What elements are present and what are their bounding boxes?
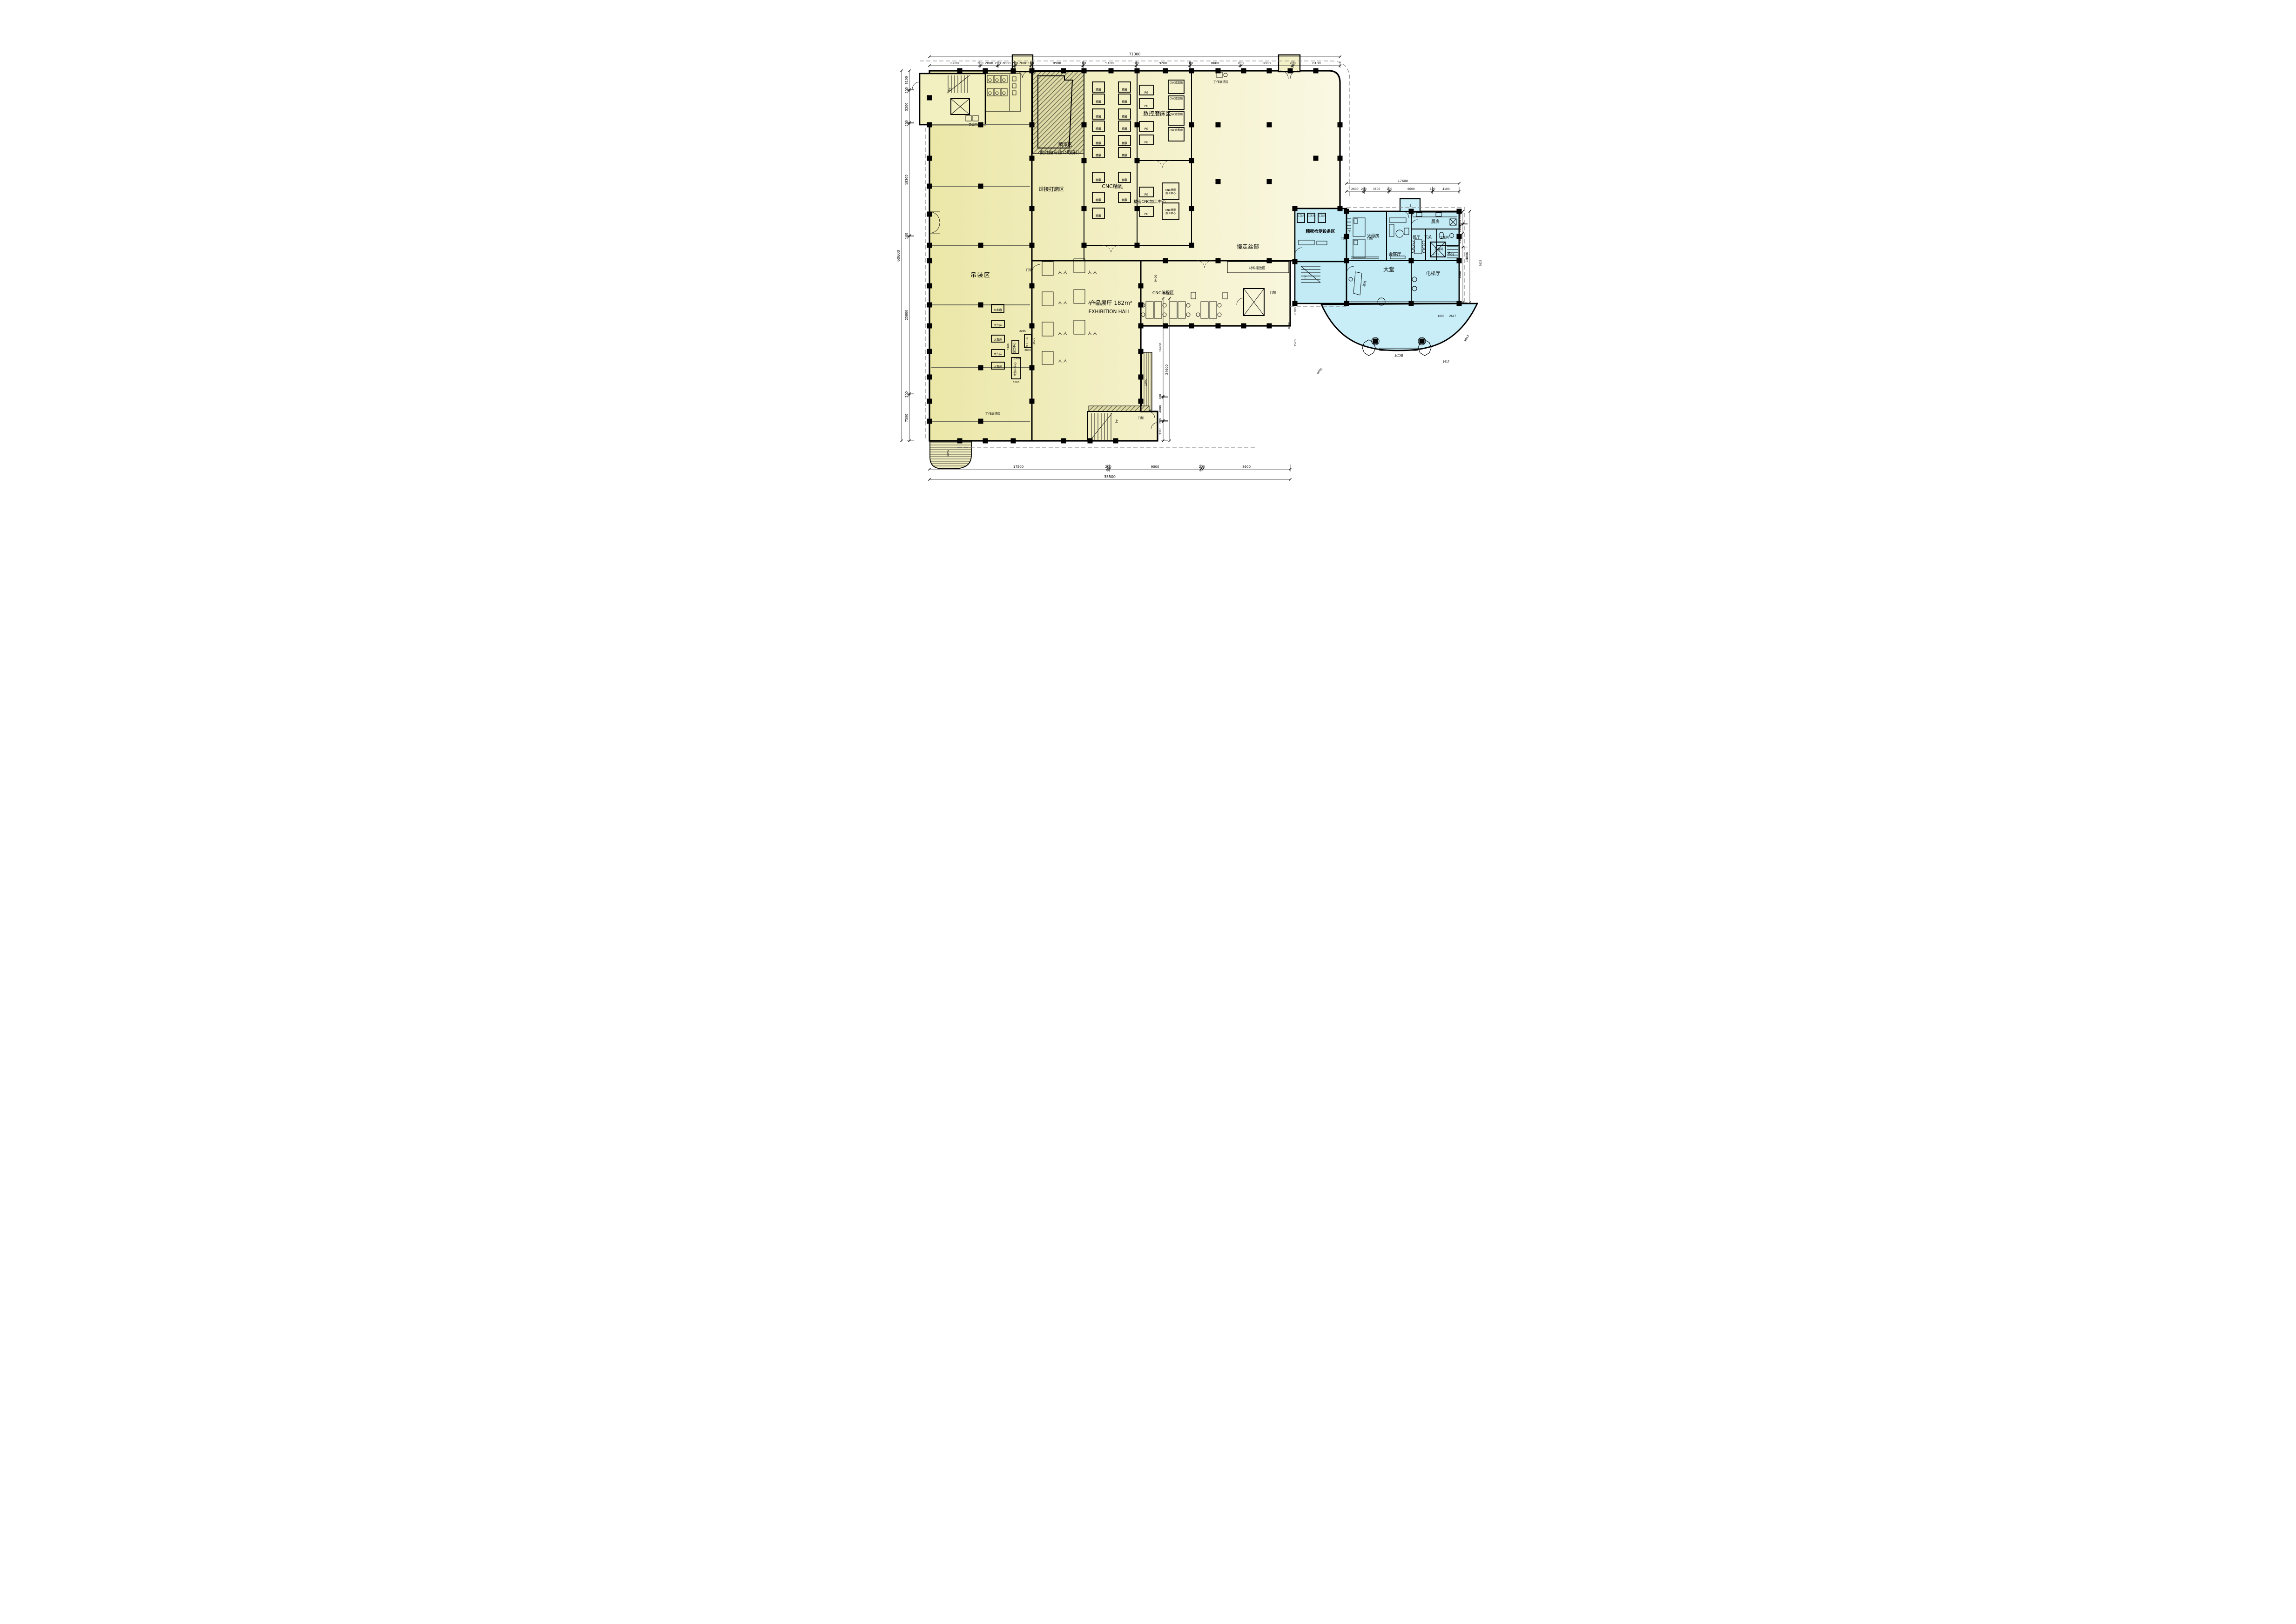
up-label: 上: [1409, 203, 1412, 208]
label-tool-room: 工具间: [1434, 247, 1443, 251]
machine-label: 精雕: [1121, 127, 1127, 131]
dim-text: 4000: [1159, 405, 1162, 413]
machine-label: 三次元: [1318, 214, 1326, 218]
machine-label: 大水磨: [993, 308, 1002, 312]
machine-label: 精雕: [1121, 100, 1127, 104]
dim-text: 2800: [1002, 61, 1010, 65]
column: [1189, 323, 1194, 329]
column: [1029, 365, 1034, 371]
dim-text: 200: [1159, 418, 1162, 424]
column: [927, 258, 932, 263]
column: [1215, 68, 1220, 74]
dim-text: 2300: [1013, 357, 1020, 360]
dim-text: 8700: [950, 61, 959, 65]
ramp-slope-label: 10%: [946, 450, 950, 457]
label-hoisting-area: 吊装区: [970, 271, 991, 278]
column: [1134, 206, 1139, 211]
column: [1313, 156, 1318, 161]
label-inspection-area: 精密检测设备区: [1306, 229, 1335, 234]
column: [1344, 258, 1349, 263]
machine-label: 精雕: [1121, 115, 1127, 119]
column: [1215, 258, 1220, 263]
dim-text: 9000: [1459, 271, 1462, 278]
machine-label: PG: [1144, 193, 1148, 196]
column: [1138, 283, 1143, 289]
column: [1134, 243, 1139, 248]
person-figures: 人 人: [1058, 270, 1067, 275]
column: [1292, 206, 1297, 211]
column: [1408, 258, 1414, 263]
column: [1029, 243, 1034, 248]
column: [1215, 179, 1220, 184]
access-control-label: 门禁: [1138, 416, 1144, 420]
column: [1337, 122, 1342, 128]
machine-label: 加工中心: [1025, 337, 1029, 348]
dim-text: 200: [1361, 188, 1367, 191]
column: [1061, 438, 1066, 444]
column: [1189, 158, 1194, 163]
column: [1189, 206, 1194, 211]
machine-label: 精雕: [1095, 154, 1101, 157]
column: [1029, 68, 1034, 74]
dim-text: 200: [905, 120, 909, 126]
column: [1344, 301, 1349, 306]
machine-label: PG: [1144, 105, 1148, 108]
column: [983, 438, 988, 444]
access-control-label: 门禁: [1340, 236, 1347, 240]
column: [1189, 122, 1194, 128]
dim-text: 2600: [1033, 338, 1036, 344]
machine-label: PG: [1144, 141, 1148, 144]
column: [1241, 68, 1246, 74]
machine-label: CNC成型磨: [1169, 97, 1183, 101]
access-control-label: 门禁: [1270, 290, 1276, 294]
dim-text: 200: [1387, 188, 1392, 191]
dim-text: 2628: [1480, 259, 1482, 266]
dim-text: 1400: [1459, 225, 1462, 232]
column: [1266, 122, 1272, 128]
person-figures: 人 人: [1058, 359, 1067, 364]
column: [1081, 68, 1086, 74]
machine-label: PG: [1144, 91, 1148, 94]
dim-text: 200: [905, 391, 909, 398]
column: [927, 95, 932, 101]
machine-label: 大车床: [993, 352, 1002, 356]
column: [927, 283, 932, 289]
column: [1087, 438, 1092, 444]
column: [978, 365, 983, 371]
dim-text: 3000: [1013, 381, 1019, 384]
person-figures: 人 人: [1088, 270, 1097, 275]
column: [1456, 258, 1461, 263]
machine-label: 大车床: [993, 338, 1002, 342]
machine-label: 精雕: [1095, 198, 1101, 202]
column: [1456, 301, 1461, 306]
column: [1010, 438, 1016, 444]
column: [983, 68, 988, 74]
column: [1081, 206, 1086, 211]
dim-text: 8100: [1312, 61, 1320, 65]
column: [978, 303, 983, 308]
column: [927, 212, 932, 217]
dim-text: 9100: [1105, 61, 1114, 65]
machine-label: 精雕: [1121, 198, 1127, 202]
column: [1029, 156, 1034, 161]
dim-total: 71000: [1129, 52, 1140, 56]
label-work-cleaning-sw: 工作清洁区: [985, 411, 1000, 416]
machine-label: 三次元: [1297, 214, 1305, 218]
dim-text: 200: [1237, 61, 1243, 65]
dim-text: 3100: [905, 76, 909, 84]
dim-text: 1617: [1442, 361, 1449, 364]
machine-label: CNC精密: [1165, 188, 1176, 192]
dim-text: 2750: [1433, 253, 1439, 256]
label-reception-room: 会客厅: [1388, 251, 1401, 257]
machine-label: 大车床: [993, 365, 1002, 369]
up-label: 上: [948, 87, 951, 91]
column: [1134, 122, 1139, 128]
column: [927, 323, 932, 329]
dim-text: 8600: [1211, 61, 1219, 65]
machine-label: 精雕: [1095, 127, 1101, 131]
dim-text: 7500: [905, 414, 909, 422]
dim-text: 100: [905, 233, 909, 239]
column: [1215, 122, 1220, 128]
column: [927, 156, 932, 161]
label-work-cleaning-ne: 工作清洁区: [1213, 80, 1228, 84]
column: [1134, 68, 1139, 74]
label-wire-edm: 慢走丝部: [1236, 243, 1259, 250]
column: [1266, 68, 1272, 74]
dim-text: 6000: [1316, 367, 1323, 375]
dim-total: 35500: [1104, 475, 1116, 479]
label-welding-area: 焊接打磨区: [1038, 186, 1064, 192]
dim-text: 8900: [1053, 61, 1061, 65]
column: [927, 419, 932, 424]
column: [957, 438, 962, 444]
column: [1138, 323, 1143, 329]
label-material-staging: 材料摆放区: [1249, 266, 1265, 270]
machine-label: CNC成型磨: [1169, 128, 1183, 132]
dimension-chain: 260020038002006600100410017600: [1345, 179, 1460, 194]
label-elevator-hall: 电梯厅: [1426, 270, 1440, 276]
column: [1163, 258, 1168, 263]
label-paint-note: 此处由专业公司设计: [1040, 150, 1080, 155]
machine-label: 精雕: [1095, 142, 1101, 145]
access-control-label: 门禁: [1367, 236, 1373, 240]
machine-label: 精雕: [1121, 154, 1127, 157]
machine-label: 加工中心: [1165, 211, 1176, 215]
dim-text: 8600: [1242, 465, 1251, 469]
dim-text: 3800: [1373, 188, 1380, 191]
column: [978, 122, 983, 128]
column: [957, 68, 962, 74]
column: [927, 349, 932, 354]
machine-label: 精雕: [1095, 178, 1101, 182]
column: [1408, 301, 1414, 306]
column: [1029, 323, 1034, 329]
dim-text: 200: [1159, 394, 1162, 399]
machine-label: 加工中心: [1165, 191, 1176, 195]
column: [1010, 68, 1016, 74]
dimension-chain: 175002009000200860035500: [928, 465, 1291, 481]
dim-text: 100: [1080, 61, 1086, 65]
dim-text: 2800: [985, 61, 993, 65]
label-bathroom: 卫生间: [1440, 235, 1449, 239]
dim-text: 2000: [1459, 214, 1462, 221]
column: [927, 122, 932, 128]
column: [1337, 156, 1342, 161]
dim-text: 200: [1198, 465, 1205, 469]
label-precision-cnc: 精密CNC加工中心: [1133, 199, 1166, 204]
entrance-canopy-fan: [1321, 303, 1477, 350]
label-cnc-programming: CNC编程区: [1152, 290, 1173, 296]
machine-label: CNC精密: [1165, 208, 1176, 212]
dim-text: 9000: [1151, 465, 1159, 469]
label-kitchen: 厨房: [1431, 219, 1439, 224]
column: [1138, 375, 1143, 380]
column: [1215, 323, 1220, 329]
dim-text: 5200: [905, 102, 909, 111]
dim-total: 17600: [1397, 179, 1407, 183]
person-figures: 人 人: [1088, 331, 1097, 336]
up-label: 上: [1303, 275, 1306, 279]
person-figures: 人 人: [1088, 301, 1097, 305]
dim-text: 9200: [1158, 61, 1167, 65]
column: [1337, 206, 1342, 211]
column: [978, 243, 983, 248]
up-label: 上: [1447, 251, 1450, 255]
dim-text: 5913: [1463, 335, 1470, 343]
column: [1189, 243, 1194, 248]
column: [1081, 243, 1086, 248]
up-label: 上: [1115, 419, 1118, 423]
dim-total: 14800: [1465, 252, 1469, 262]
column: [1113, 438, 1118, 444]
column: [1163, 323, 1168, 329]
column: [1081, 122, 1086, 128]
column: [1189, 68, 1194, 74]
column: [1138, 399, 1143, 404]
column: [1313, 68, 1318, 74]
machine-label: 大车床: [993, 323, 1002, 327]
column: [1241, 323, 1246, 329]
ramp-slope-label: 10%: [1144, 379, 1148, 386]
southwest-ramp: [930, 441, 971, 469]
column: [978, 184, 983, 189]
dim-text: 200: [1105, 465, 1111, 469]
dim-text: 1520: [1294, 339, 1297, 347]
column: [1408, 209, 1414, 214]
dim-total: 60600: [896, 250, 901, 262]
label-dining-room: 餐厅: [1413, 235, 1420, 239]
steps-label: 上二级: [1394, 353, 1403, 357]
machine-label: PG: [1144, 128, 1148, 131]
machine-label: 精雕: [1121, 178, 1127, 182]
dim-text: 18300: [905, 175, 909, 185]
column: [1292, 301, 1297, 306]
dimension-chain: 310020052002001830010025800200750060600: [896, 69, 914, 442]
column: [927, 184, 932, 189]
column: [1134, 158, 1139, 163]
label-cnc-grinder-area: 数控磨床区: [1143, 110, 1171, 117]
dim-text: 7820: [1288, 322, 1291, 330]
dim-text: 200: [1012, 61, 1018, 65]
column: [927, 399, 932, 404]
dim-text: 100: [1430, 188, 1435, 191]
dim-text: 16900: [1159, 343, 1162, 352]
column: [1266, 179, 1272, 184]
column: [1029, 122, 1034, 128]
dim-text: 100: [1133, 61, 1139, 65]
machine-label: 大加工中心: [1013, 362, 1017, 376]
label-exhibition-en: EXHIBITION HALL: [1088, 309, 1131, 315]
machine-label: 加工中心: [1012, 343, 1016, 353]
column: [1266, 323, 1272, 329]
dim-text: 4100: [1442, 188, 1449, 191]
column: [1138, 349, 1143, 354]
dim-text: 9400: [1154, 275, 1158, 282]
column: [1138, 303, 1143, 308]
column: [1456, 209, 1461, 214]
column: [1029, 399, 1034, 404]
dim-text: 8800: [1262, 61, 1271, 65]
dim-text: 200: [994, 61, 1000, 65]
person-figures: 人 人: [1058, 301, 1067, 305]
machine-label: PG: [1144, 213, 1148, 216]
down-label: 下: [1347, 230, 1350, 234]
column: [1081, 158, 1086, 163]
machine-label: 三次元: [1307, 214, 1315, 218]
label-foyer: 玄关: [1424, 235, 1432, 239]
machine-label: CNC成型磨: [1169, 81, 1183, 85]
person-figures: 人 人: [1058, 331, 1067, 336]
dim-text: 3100: [1007, 344, 1010, 350]
column: [927, 375, 932, 380]
dim-text: 3300: [1159, 428, 1162, 435]
dim-text: 2627: [1449, 315, 1456, 318]
dim-text: 1095: [1437, 315, 1444, 318]
dim-text: 2600: [1019, 61, 1027, 65]
dim-total: 24600: [1165, 364, 1169, 375]
machine-label: 精雕: [1095, 100, 1101, 104]
column: [1266, 258, 1272, 263]
column: [927, 243, 932, 248]
dim-text: 200: [1289, 61, 1295, 65]
paint-zone-hatch: [1033, 72, 1084, 154]
dim-text: 2300: [1459, 236, 1462, 244]
dim-text: 100: [1028, 61, 1034, 65]
column: [1029, 283, 1034, 289]
column: [1108, 68, 1113, 74]
machine-label: 精雕: [1095, 115, 1101, 119]
label-cnc-engraving: CNC精雕: [1102, 183, 1123, 189]
column: [1061, 68, 1066, 74]
column: [927, 303, 932, 308]
building-footprints: [920, 55, 1477, 441]
dim-text: 100: [1186, 61, 1192, 65]
column: [978, 419, 983, 424]
machine-label: 精雕: [1095, 214, 1101, 218]
machine-label: 精雕: [1121, 142, 1127, 145]
dim-text: 2600: [1351, 188, 1359, 191]
dim-text: 25800: [905, 310, 909, 320]
access-control-label: 门禁: [1026, 268, 1032, 272]
dim-text: 6600: [1407, 188, 1415, 191]
machine-label: 精雕: [1095, 88, 1101, 92]
label-paint-area: 喷漆区: [1058, 142, 1072, 148]
dimension-chain: 200010014002300900014800: [1459, 210, 1471, 303]
dim-text: 200: [977, 61, 983, 65]
column: [1163, 68, 1168, 74]
column: [1287, 68, 1293, 74]
dim-text: 200: [905, 87, 909, 93]
dim-text: 2000: [1024, 349, 1031, 352]
dim-text: 17500: [1013, 465, 1023, 469]
machine-label: 精雕: [1121, 88, 1127, 92]
label-lobby: 大堂: [1383, 266, 1394, 273]
column: [1344, 209, 1349, 214]
dim-text: 2265: [1019, 330, 1026, 333]
floor-plan-page: 吊装区 焊接打磨区 喷漆区 此处由专业公司设计 CNC精雕 数控磨床区 精密CN…: [785, 0, 1511, 513]
column: [1029, 206, 1034, 211]
floor-plan-drawing: 吊装区 焊接打磨区 喷漆区 此处由专业公司设计 CNC精雕 数控磨床区 精密CN…: [785, 0, 1511, 513]
machine-label: CNC成型磨: [1169, 113, 1183, 116]
column: [1292, 259, 1297, 264]
dim-text: 6300: [1294, 307, 1297, 315]
